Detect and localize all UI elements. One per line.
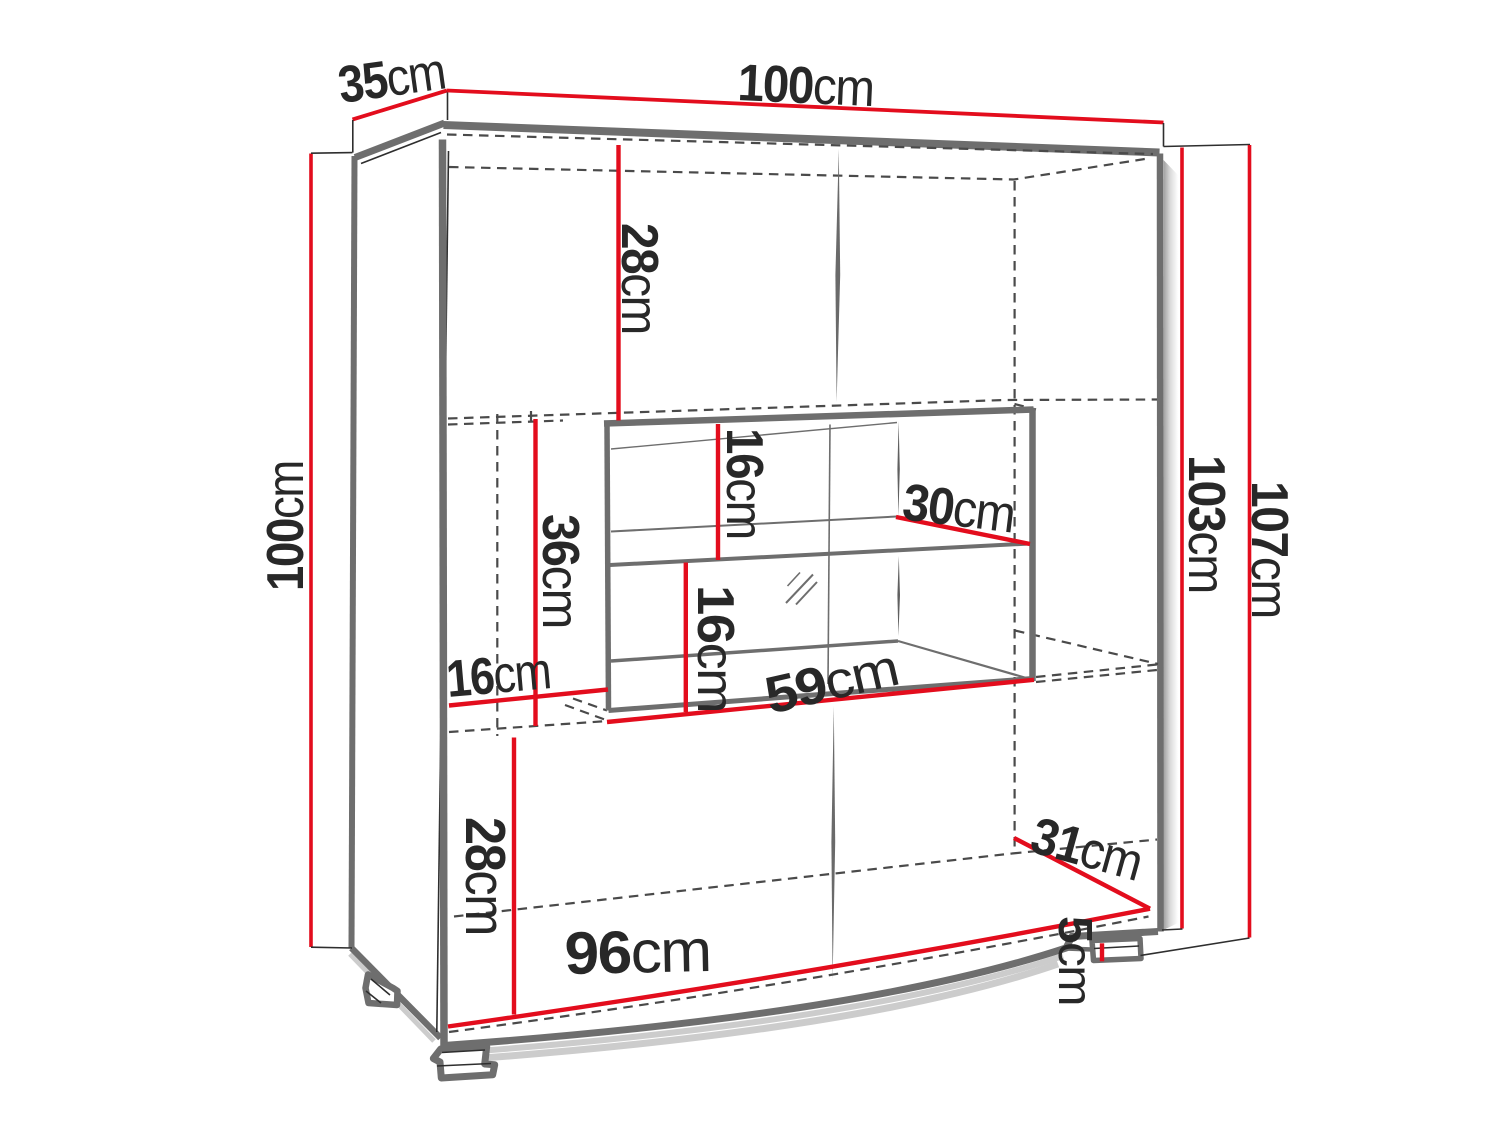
svg-text:16cm: 16cm bbox=[715, 428, 773, 539]
svg-text:5cm: 5cm bbox=[1048, 916, 1101, 1005]
svg-text:16cm: 16cm bbox=[686, 585, 744, 712]
svg-text:28cm: 28cm bbox=[453, 817, 517, 935]
svg-text:100cm: 100cm bbox=[257, 461, 315, 591]
svg-text:100cm: 100cm bbox=[736, 54, 874, 118]
svg-text:28cm: 28cm bbox=[610, 223, 668, 334]
svg-text:107cm: 107cm bbox=[1240, 481, 1298, 618]
svg-text:103cm: 103cm bbox=[1177, 455, 1235, 593]
svg-text:16cm: 16cm bbox=[444, 642, 553, 709]
svg-text:96cm: 96cm bbox=[564, 917, 711, 987]
svg-text:36cm: 36cm bbox=[531, 514, 589, 628]
